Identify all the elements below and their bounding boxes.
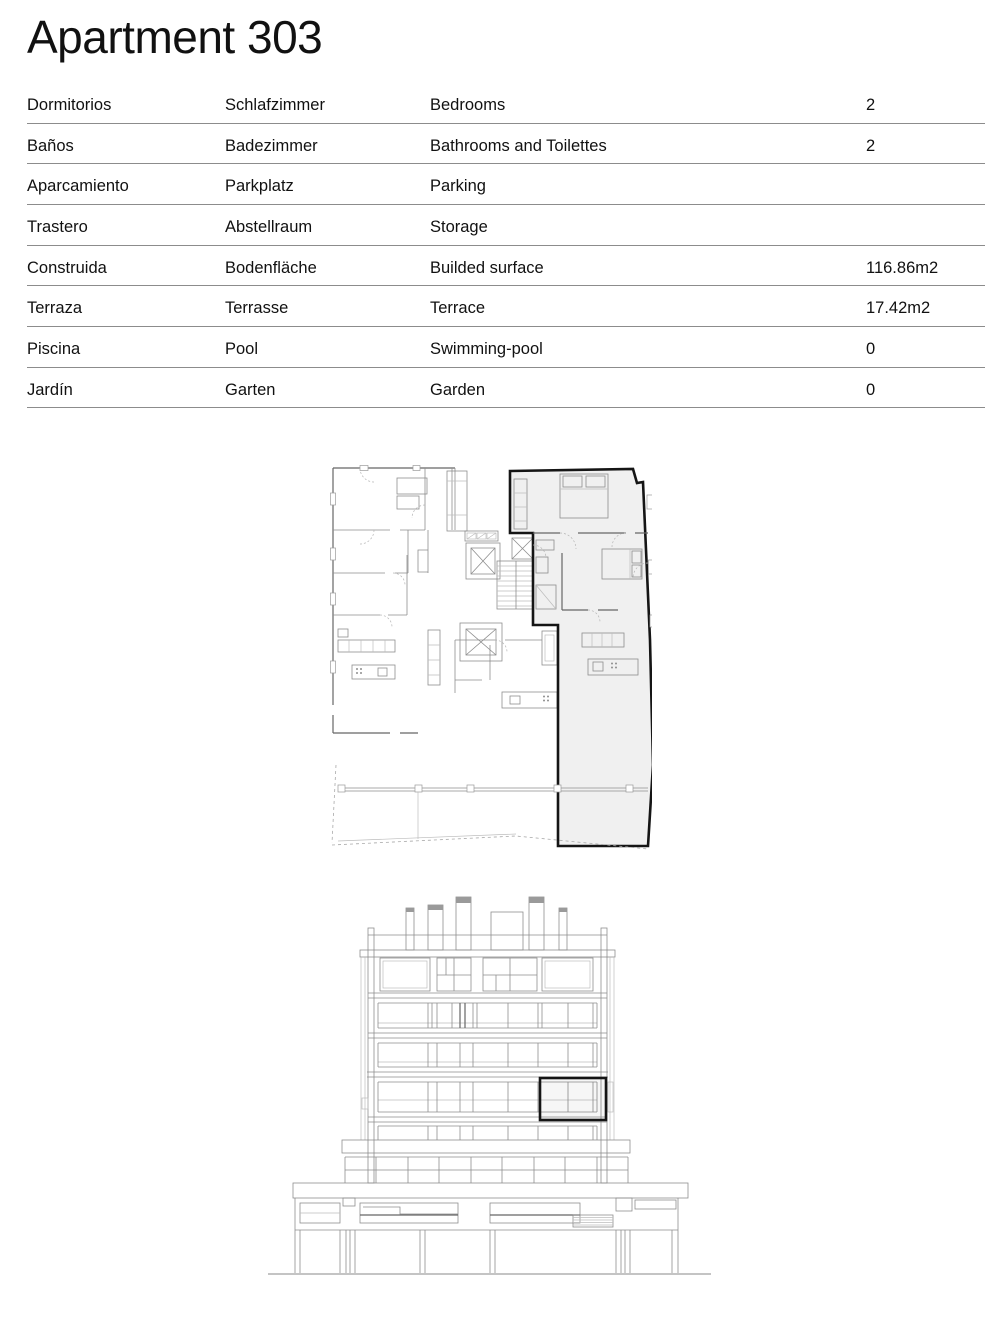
elevator-icon xyxy=(466,543,500,579)
label-en: Storage xyxy=(430,217,866,238)
table-row: AparcamientoParkplatzParking xyxy=(27,164,985,205)
floor-plan-drawing xyxy=(330,465,652,857)
stairs-icon xyxy=(497,561,535,609)
building-elevation-drawing xyxy=(268,895,713,1285)
info-table: DormitoriosSchlafzimmerBedrooms2BañosBad… xyxy=(27,83,985,408)
elevator-icon xyxy=(460,623,502,661)
label-en: Builded surface xyxy=(430,258,866,279)
label-de: Abstellraum xyxy=(225,217,430,238)
label-en: Garden xyxy=(430,380,866,401)
value: 2 xyxy=(866,95,985,116)
label-en: Bathrooms and Toilettes xyxy=(430,136,866,157)
label-en: Bedrooms xyxy=(430,95,866,116)
floor-plan-svg xyxy=(330,465,652,857)
label-es: Trastero xyxy=(27,217,225,238)
value: 17.42m2 xyxy=(866,298,985,319)
label-de: Schlafzimmer xyxy=(225,95,430,116)
value: 2 xyxy=(866,136,985,157)
label-en: Parking xyxy=(430,176,866,197)
label-de: Terrasse xyxy=(225,298,430,319)
label-en: Swimming-pool xyxy=(430,339,866,360)
table-row: PiscinaPoolSwimming-pool0 xyxy=(27,327,985,368)
label-de: Badezimmer xyxy=(225,136,430,157)
label-es: Construida xyxy=(27,258,225,279)
elevator-icon xyxy=(512,538,533,559)
label-es: Terraza xyxy=(27,298,225,319)
table-row: JardínGartenGarden0 xyxy=(27,368,985,409)
roof-slab xyxy=(360,935,615,957)
label-es: Baños xyxy=(27,136,225,157)
label-en: Terrace xyxy=(430,298,866,319)
table-row: DormitoriosSchlafzimmerBedrooms2 xyxy=(27,83,985,124)
table-row: BañosBadezimmerBathrooms and Toilettes2 xyxy=(27,124,985,165)
label-es: Piscina xyxy=(27,339,225,360)
page-title: Apartment 303 xyxy=(27,10,985,65)
shaft-icon xyxy=(542,631,557,665)
unit-303-elevation-marker xyxy=(540,1078,606,1120)
value: 116.86m2 xyxy=(866,258,985,279)
label-de: Parkplatz xyxy=(225,176,430,197)
label-de: Bodenfläche xyxy=(225,258,430,279)
value: 0 xyxy=(866,339,985,360)
table-row: TrasteroAbstellraumStorage xyxy=(27,205,985,246)
value: 0 xyxy=(866,380,985,401)
label-es: Aparcamiento xyxy=(27,176,225,197)
label-es: Dormitorios xyxy=(27,95,225,116)
chimneys xyxy=(406,897,567,950)
building-elevation-svg xyxy=(268,895,713,1285)
label-de: Garten xyxy=(225,380,430,401)
label-es: Jardín xyxy=(27,380,225,401)
apartment-sheet: Apartment 303 DormitoriosSchlafzimmerBed… xyxy=(0,0,1000,408)
label-de: Pool xyxy=(225,339,430,360)
base-floors xyxy=(293,1140,688,1273)
table-row: TerrazaTerrasseTerrace17.42m2 xyxy=(27,286,985,327)
table-row: ConstruidaBodenflächeBuilded surface116.… xyxy=(27,246,985,287)
facade-pilasters xyxy=(361,928,614,1183)
